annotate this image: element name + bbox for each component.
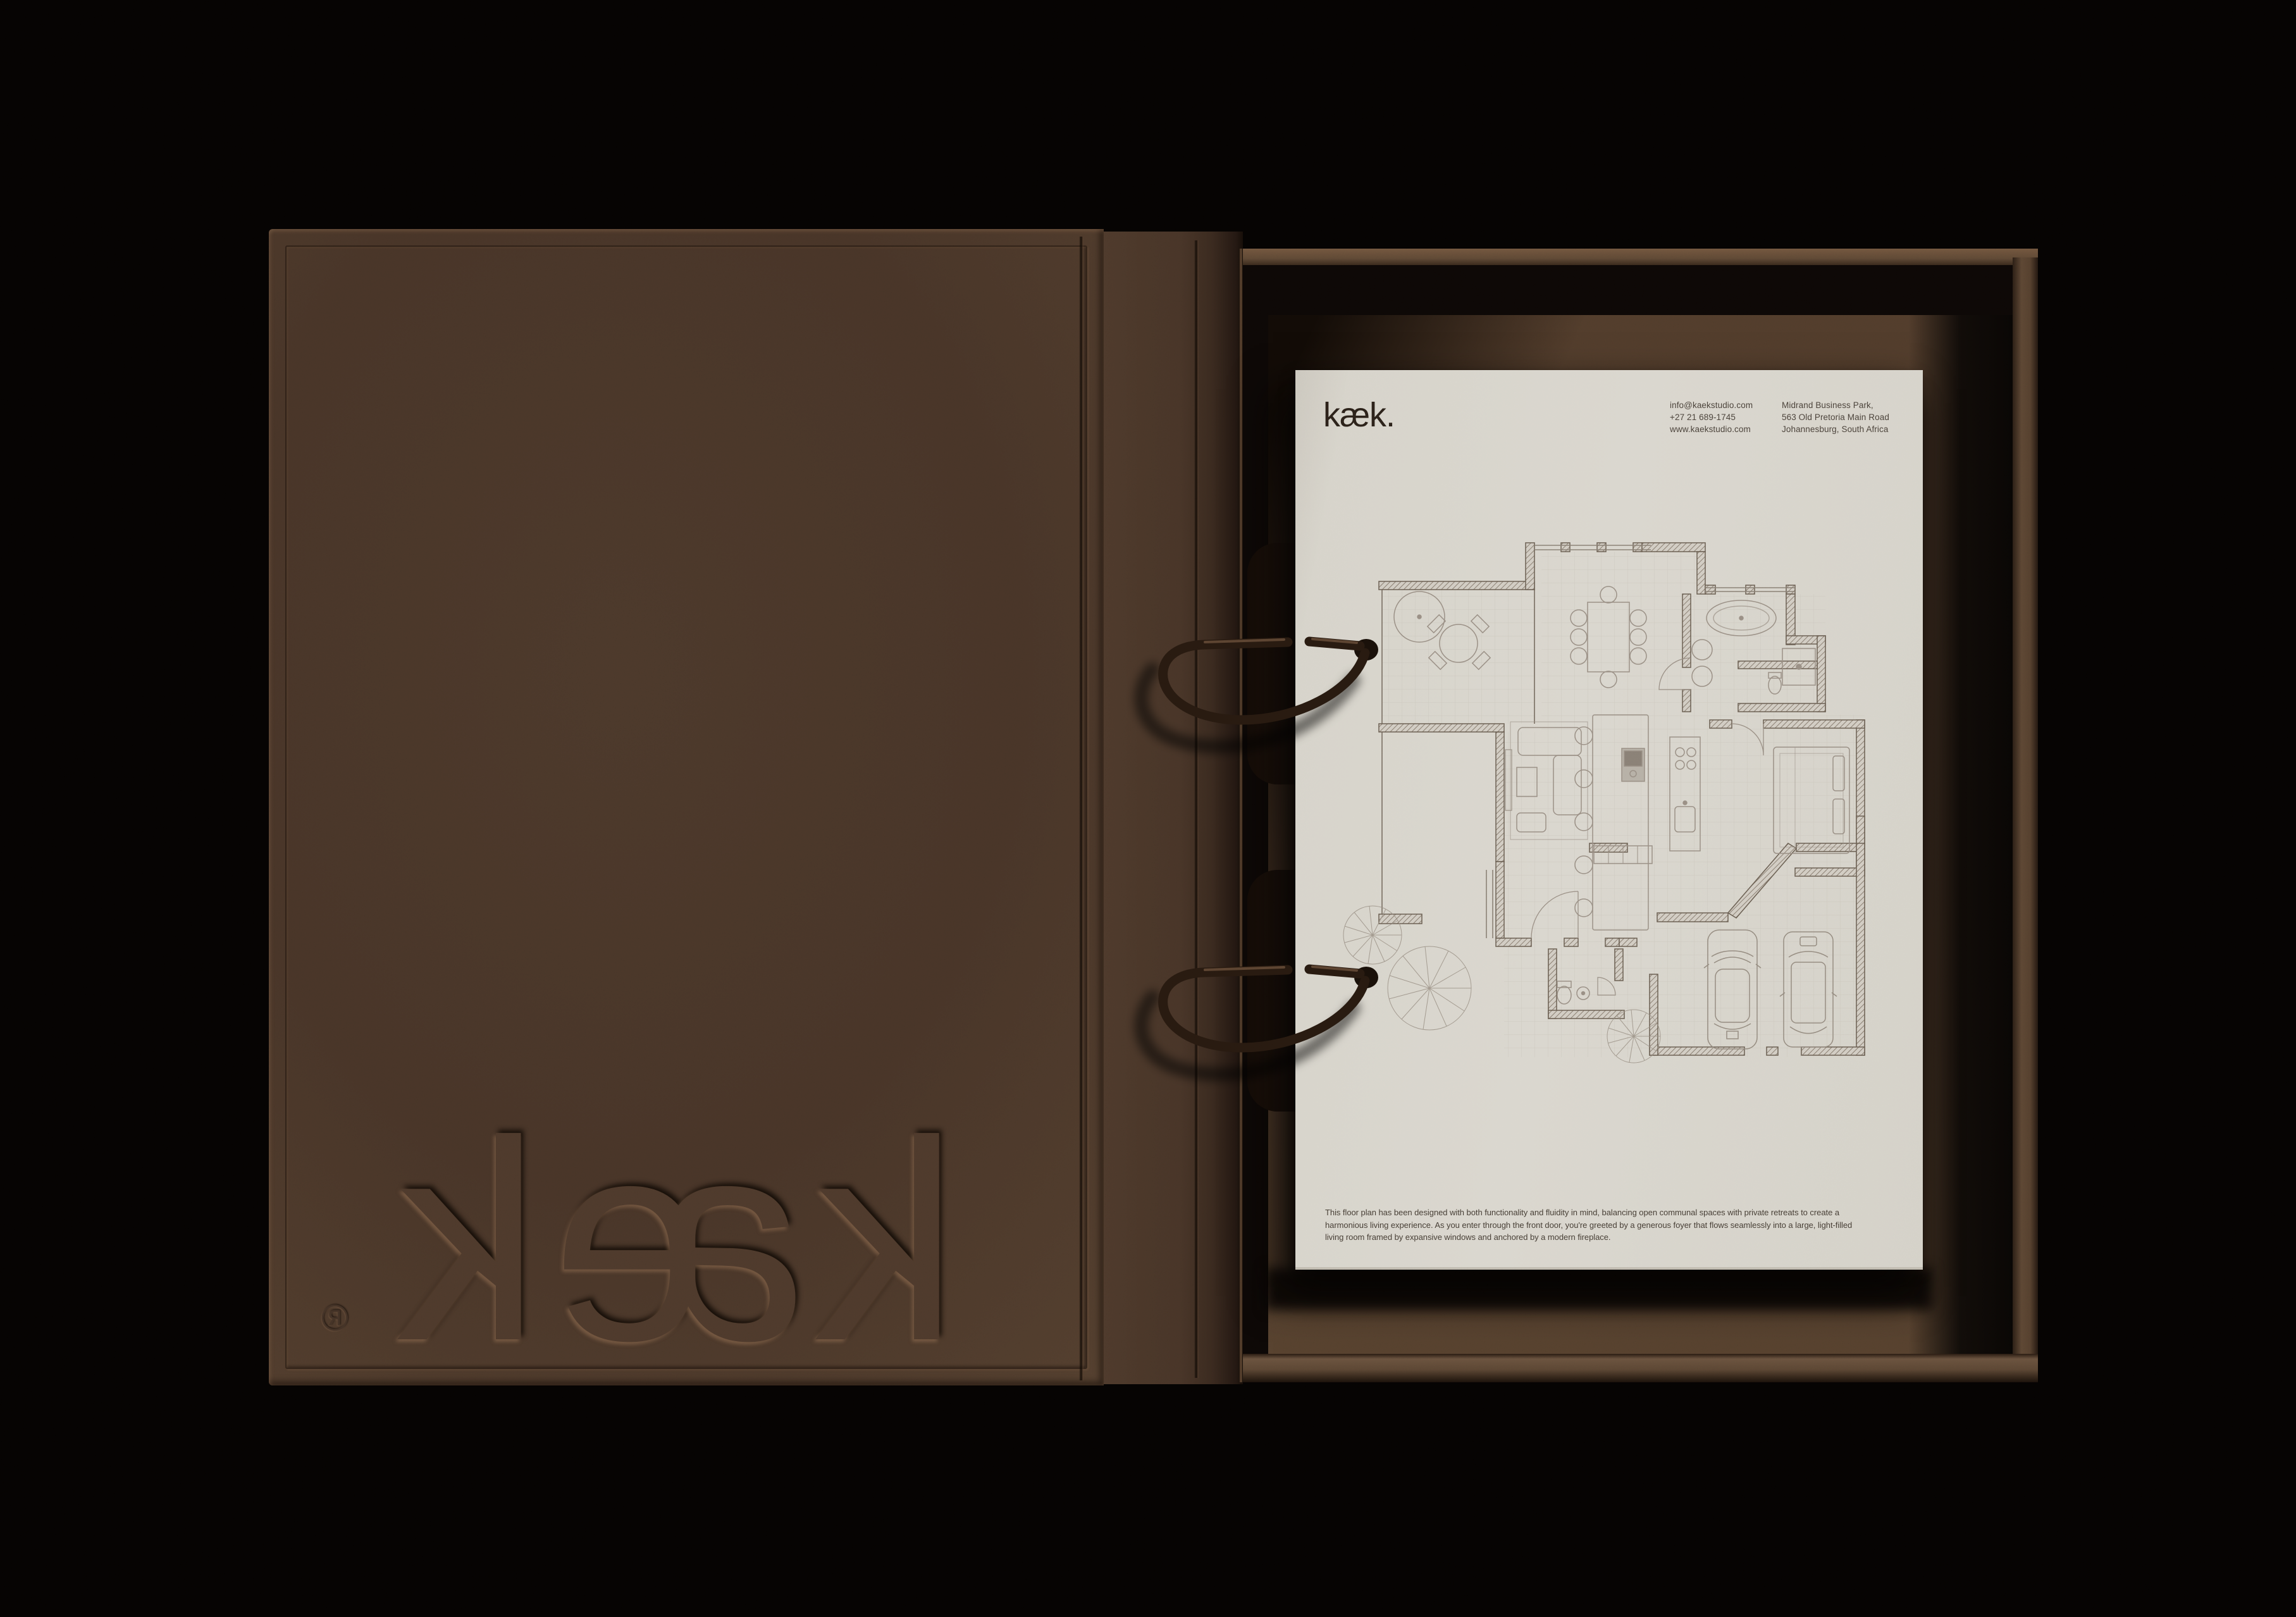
floor-plan-svg — [1295, 370, 1923, 1267]
registered-mark-icon: ® — [321, 1297, 349, 1339]
box-rim-right — [2013, 257, 2038, 1382]
folder-spine — [1104, 232, 1243, 1384]
box-rim-bottom — [1243, 1354, 2038, 1382]
paper-cast-shadow — [1265, 1268, 1932, 1310]
letterhead-paper: kæk. info@kaekstudio.com +27 21 689-1745… — [1295, 370, 1923, 1267]
tree — [1388, 946, 1471, 1030]
punched-hole — [1357, 968, 1376, 987]
spine-groove — [1194, 240, 1199, 1378]
box-wall-highlight — [1240, 249, 1242, 1382]
box-rim-top — [1243, 249, 2038, 265]
tree — [1343, 906, 1402, 964]
spine-groove — [1079, 237, 1083, 1380]
mockup-scene: kæk ® kæk. info@kaekstudio.com +27 21 68… — [0, 0, 2296, 1617]
punched-hole — [1357, 640, 1376, 659]
folder-cover: kæk ® — [269, 229, 1104, 1385]
floor-plan-description: This floor plan has been designed with b… — [1325, 1206, 1867, 1244]
embossed-mirrored-logo: kæk — [364, 1099, 958, 1396]
